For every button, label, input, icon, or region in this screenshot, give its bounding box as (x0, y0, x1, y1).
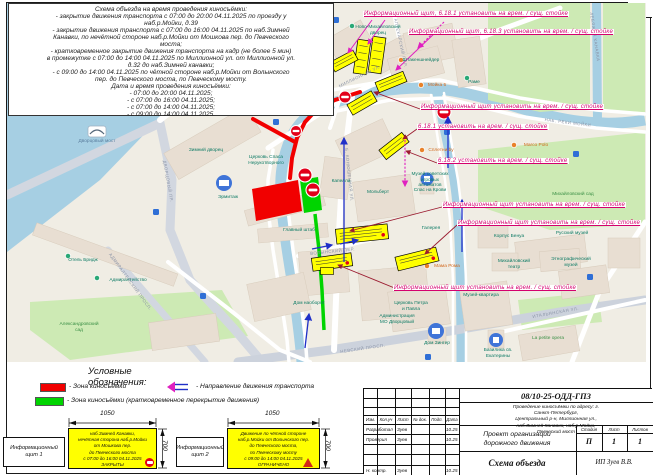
poi-label: Ново-Михайловский дворец (355, 25, 400, 36)
poi-label: Сплетни.by (428, 148, 453, 154)
poi-label: Этнографический музей (551, 257, 591, 268)
annotation-callout: 6.18.2 установить на врем. / сущ. стойке (437, 158, 569, 164)
poi-label: Дом Зингер (424, 341, 450, 347)
poi-label: Церковь Петра и Павла (394, 301, 428, 312)
tb-role: Проверил (366, 437, 387, 442)
poi-label: Отель Бридж (68, 258, 98, 264)
poi-label: Мольберт (367, 190, 389, 196)
sheets-total-value: 1 (638, 437, 642, 446)
legend-item-label: - Зона киносъёмки (кратковременное перек… (67, 397, 259, 404)
tb-name: Зуев (397, 427, 407, 432)
poi-label: Адмиралтейство (109, 278, 146, 284)
tb-role: Н. контр. (366, 468, 387, 473)
poi-label: Marco Polo (524, 143, 548, 149)
legend-item-label: - Направление движения транспорта (196, 383, 314, 390)
no-entry-icon (298, 168, 312, 182)
poi-label: Зимний дворец (189, 148, 223, 154)
poi-label: Церковь Спаса Нерукотворного (248, 155, 284, 166)
poi-label: Михайловский сад (552, 192, 593, 198)
poi-label: Раме (468, 80, 480, 86)
dimension-width: 1050 (100, 410, 114, 417)
poi-label: Дом наоборот (293, 301, 324, 307)
poi-label: Мама Рома (434, 264, 460, 270)
poi-label: Эрмитаж (218, 195, 238, 201)
park-letniy-sad (603, 3, 645, 112)
info-sign-1-board: наб.Зимней Канавки, нечётная сторона наб… (68, 428, 157, 469)
poi-label: Музей советских игровых автоматов (411, 172, 448, 189)
scheme-description-box: Схема объезда на время проведения киносъ… (8, 3, 334, 116)
bridge-icon (88, 126, 106, 137)
basilica-icon (489, 333, 503, 347)
warning-triangle-icon (303, 458, 313, 467)
dimension-width: 1050 (265, 410, 279, 417)
poi-label: Базилика св. Екатерины (484, 348, 513, 359)
legend-item-label: - Зона киносъёмки (69, 383, 126, 390)
stage-col: Листов (632, 427, 648, 432)
tb-name: Зуев (397, 437, 407, 442)
poi-label: Главный штаб (283, 228, 315, 234)
poi-label: La petite opera (532, 336, 564, 342)
tb-date: 10.25 (446, 437, 458, 442)
document-code: 08/10-25-ОДД-ГПЗ (521, 391, 591, 401)
tb-role: Разработал (366, 427, 393, 432)
poi-label: Михайловский театр (498, 259, 530, 270)
poi-label: Мойка 5 (428, 83, 446, 89)
poi-label: Музей-квартира (463, 293, 499, 299)
tb-date: 10.25 (446, 468, 458, 473)
no-entry-icon (306, 183, 320, 197)
tb-date: 10.25 (446, 427, 458, 432)
annotation-callout: Информационный щит, 6.18.3 установить на… (408, 29, 614, 35)
stage-value: П (586, 437, 592, 446)
sheet-title: Схема объезда (489, 458, 546, 468)
sign-name-box: Информационный щит 1 (3, 437, 65, 467)
tb-name: Зуев (397, 468, 407, 473)
no-entry-icon (339, 91, 351, 103)
direction-arrow-icon (167, 381, 189, 393)
tb-col: Лист (397, 417, 408, 422)
tb-col: № док. (413, 417, 427, 422)
stage-col: Лист (608, 427, 619, 432)
annotation-callout: Информационный щит установить на врем. /… (457, 220, 641, 226)
poi-label: Штакеншнейдер (403, 58, 440, 64)
poi-label: Спас на Крови (414, 188, 446, 194)
singer-house-icon (428, 323, 444, 339)
annotation-callout: 6.18.1 установить на врем. / сущ. стойке (417, 124, 549, 130)
poi-label: Русский музей (556, 231, 588, 237)
tb-col: Изм. (366, 417, 375, 422)
title-block: Изм. Кол.уч Лист № док. Подп. Дата Разра… (363, 388, 652, 474)
tb-col: Кол.уч (380, 417, 393, 422)
annotation-callout: Информационный щит установить на врем. /… (393, 285, 577, 291)
legend-red-swatch (40, 383, 66, 392)
hermitage-icon (216, 175, 232, 191)
dimension-line (68, 418, 157, 427)
poi-label: Корпус Бенуа (494, 234, 524, 240)
annotation-callout: Информационный щит установить на врем. /… (442, 202, 626, 208)
sign-name-box: Информационный щит 2 (176, 437, 224, 467)
annotation-callout: Информационный щит, 6.18.1 установить на… (363, 11, 569, 17)
stage-col: Стадия (581, 427, 597, 432)
annotation-callout: Информационный щит установить на врем. /… (420, 104, 604, 110)
project-type: Проект организации дорожного движения (483, 431, 551, 448)
poi-label: Галерея (422, 226, 440, 232)
poi-label: Дворцовый мост (78, 139, 115, 145)
poi-label: Администрация МО Дворцовый (379, 314, 414, 325)
dimension-height: 700 (161, 440, 168, 451)
drawing-sheet: Эрмитажный театр Ново-Михайловский дворе… (0, 0, 656, 476)
dimension-height: 700 (324, 440, 331, 451)
tb-col: Дата (446, 417, 457, 422)
dimension-line (227, 418, 320, 427)
poi-label: Капелла (332, 179, 351, 185)
no-entry-icon (145, 458, 154, 467)
legend-green-swatch (35, 397, 64, 406)
tb-col: Подп. (431, 417, 442, 422)
no-entry-icon (291, 126, 302, 137)
poi-label: Александровский сад (59, 322, 98, 333)
sheet-value: 1 (612, 437, 616, 446)
author: ИП Зуев В.В. (595, 459, 632, 466)
